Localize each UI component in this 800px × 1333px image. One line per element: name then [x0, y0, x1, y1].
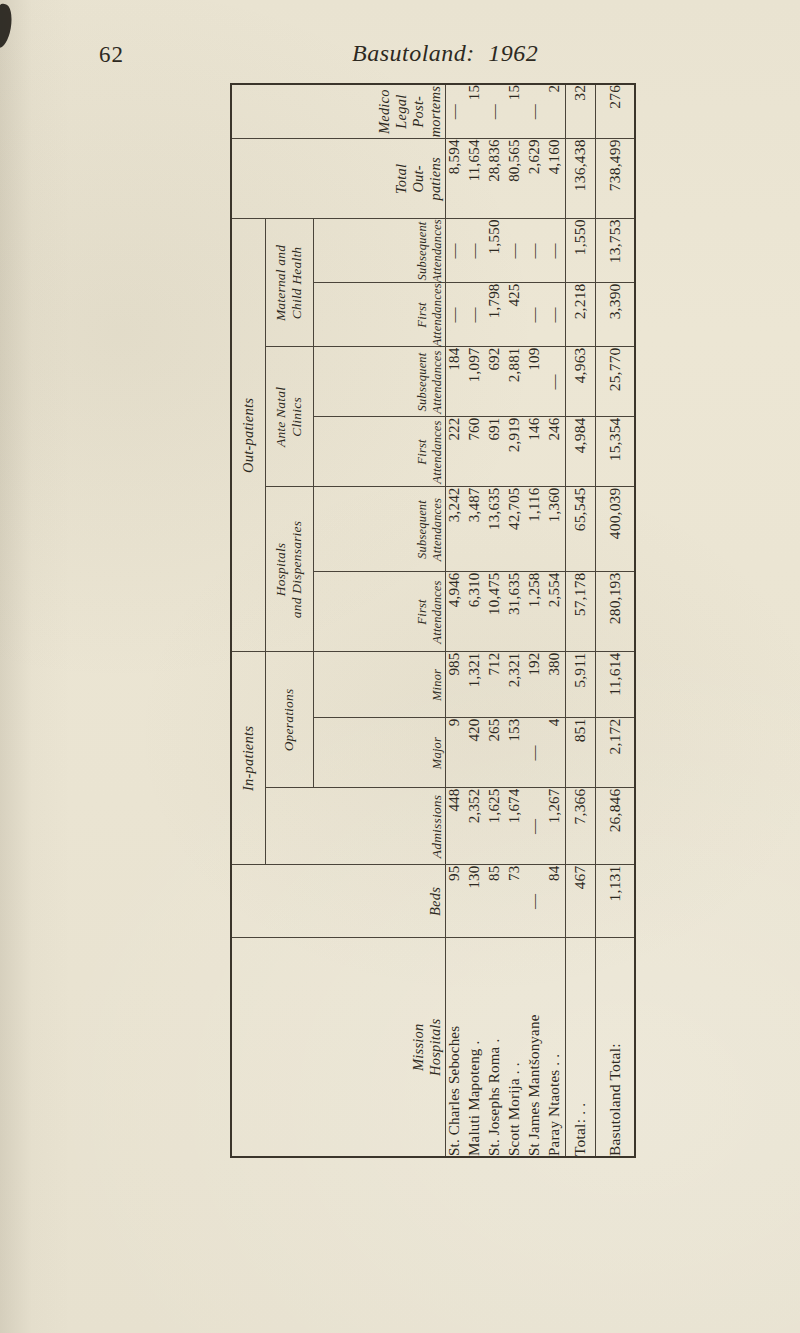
table-cell: 84: [545, 865, 565, 938]
table-cell: 712: [485, 652, 505, 718]
table-cell: 1,360: [545, 487, 565, 572]
table-cell: 222: [445, 417, 465, 487]
table-cell: 32: [565, 84, 595, 139]
table-cell: —: [465, 283, 485, 347]
table-cell: 2,919: [505, 417, 525, 487]
table-cell: 2,629: [525, 139, 545, 219]
table-cell: 851: [565, 718, 595, 788]
hospital-name: Maluti Mapoteng .: [465, 938, 485, 1157]
table-cell: 985: [445, 652, 465, 718]
table-cell: 4: [545, 718, 565, 788]
hospital-name: St James Mantšonyane: [525, 938, 545, 1157]
table-cell: 2,352: [465, 788, 485, 865]
table-body: St. Charles Seboches 95 448 9 985 4,946 …: [445, 84, 635, 1157]
table-cell: 8,594: [445, 139, 465, 219]
table-cell: 1,321: [465, 652, 485, 718]
col-header-hd-subsequent-attendances: Subsequent Attendances: [313, 487, 445, 572]
table-row: St James Mantšonyane — — — 192 1,258 1,1…: [525, 84, 545, 1157]
col-group-out-patients: Out-patients: [231, 219, 265, 652]
col-group-hospitals-and-dispensaries: Hospitals and Dispensaries: [265, 487, 313, 652]
table-cell: 5,911: [565, 652, 595, 718]
table-cell: 136,438: [565, 139, 595, 219]
table-cell: 184: [445, 347, 465, 417]
table-cell: —: [505, 219, 525, 283]
table-cell: 420: [465, 718, 485, 788]
table-cell: 467: [565, 865, 595, 938]
table-cell: 57,178: [565, 572, 595, 652]
table-cell: 9: [445, 718, 465, 788]
table-cell: 448: [445, 788, 465, 865]
table-cell: 2,881: [505, 347, 525, 417]
col-group-maternal-and-child-health: Maternal and Child Health: [265, 219, 313, 347]
table-cell: 380: [545, 652, 565, 718]
table-cell: 7,366: [565, 788, 595, 865]
col-header-hd-first-attendances: First Attendances: [313, 572, 445, 652]
table-cell: 15: [465, 84, 485, 139]
table-header: Mission Hospitals Beds In-patients Out-p…: [231, 84, 445, 1157]
table-cell: 10,475: [485, 572, 505, 652]
table-cell: 13,635: [485, 487, 505, 572]
table-cell: 1,116: [525, 487, 545, 572]
table-cell: 15,354: [595, 417, 635, 487]
table-cell: 692: [485, 347, 505, 417]
table-cell: 26,846: [595, 788, 635, 865]
table-cell: 2,554: [545, 572, 565, 652]
col-header-admissions: Admissions: [265, 788, 445, 865]
table-cell: 265: [485, 718, 505, 788]
table-cell: 280,193: [595, 572, 635, 652]
table-cell: —: [445, 84, 465, 139]
table-cell: 130: [465, 865, 485, 938]
table-cell: 425: [505, 283, 525, 347]
table-cell: 192: [525, 652, 545, 718]
table-cell: 85: [485, 865, 505, 938]
col-header-medico-legal-post-mortems: Medico Legal Post-mortems: [231, 84, 445, 139]
table-cell: 80,565: [505, 139, 525, 219]
table-cell: 760: [465, 417, 485, 487]
table-cell: 11,614: [595, 652, 635, 718]
table-cell: 1,258: [525, 572, 545, 652]
table-cell: 4,963: [565, 347, 595, 417]
table-cell: 28,836: [485, 139, 505, 219]
table-cell: —: [525, 219, 545, 283]
table-cell: —: [525, 718, 545, 788]
table-cell: —: [545, 283, 565, 347]
table-cell: 1,625: [485, 788, 505, 865]
col-header-mch-subsequent-attendances: Subsequent Attendances: [313, 219, 445, 283]
table-cell: —: [525, 865, 545, 938]
col-header-an-first-attendances: First Attendances: [313, 417, 445, 487]
table-cell: —: [525, 283, 545, 347]
table-cell: 1,798: [485, 283, 505, 347]
table-cell: —: [445, 283, 465, 347]
table-cell: 11,654: [465, 139, 485, 219]
table-cell: 738,499: [595, 139, 635, 219]
table-row: Paray Ntaotes . . 84 1,267 4 380 2,554 1…: [545, 84, 565, 1157]
table-cell: 3,242: [445, 487, 465, 572]
table-row: St. Charles Seboches 95 448 9 985 4,946 …: [445, 84, 465, 1157]
table-cell: 42,705: [505, 487, 525, 572]
col-group-ante-natal-clinics: Ante Natal Clinics: [265, 347, 313, 487]
table-cell: 2,321: [505, 652, 525, 718]
col-header-mission-hospitals: Mission Hospitals: [231, 938, 445, 1157]
col-group-in-patients: In-patients: [231, 652, 265, 865]
table-cell: —: [485, 84, 505, 139]
table-cell: 2: [545, 84, 565, 139]
table-cell: 65,545: [565, 487, 595, 572]
page-number: 62: [99, 42, 124, 68]
table-row: St. Josephs Roma . 85 1,625 265 712 10,4…: [485, 84, 505, 1157]
col-header-beds: Beds: [231, 865, 445, 938]
table-row: Scott Morija . . 73 1,674 153 2,321 31,6…: [505, 84, 525, 1157]
table-cell: 25,770: [595, 347, 635, 417]
table-cell: 1,131: [595, 865, 635, 938]
table-cell: 153: [505, 718, 525, 788]
table-cell: 4,160: [545, 139, 565, 219]
table-cell: —: [545, 219, 565, 283]
col-header-an-subsequent-attendances: Subsequent Attendances: [313, 347, 445, 417]
table-cell: 276: [595, 84, 635, 139]
table-cell: 4,946: [445, 572, 465, 652]
table-cell: —: [465, 219, 485, 283]
table-cell: 2,218: [565, 283, 595, 347]
scanned-book-page: 62 Basutoland: 1962 Mission Hospitals Be…: [0, 0, 800, 1333]
table-cell: 95: [445, 865, 465, 938]
table-cell: 1,550: [565, 219, 595, 283]
scan-smudge: [0, 3, 15, 49]
hospital-name: Paray Ntaotes . .: [545, 938, 565, 1157]
table-cell: 73: [505, 865, 525, 938]
table-cell: 146: [525, 417, 545, 487]
table-cell: 246: [545, 417, 565, 487]
table-cell: 400,039: [595, 487, 635, 572]
table-cell: 6,310: [465, 572, 485, 652]
table-cell: 1,550: [485, 219, 505, 283]
table-cell: 4,984: [565, 417, 595, 487]
table-cell: 109: [525, 347, 545, 417]
header-row-groups: Mission Hospitals Beds In-patients Out-p…: [231, 84, 265, 1157]
running-head: Basutoland: 1962: [352, 40, 538, 67]
basutoland-total-label: Basutoland Total:: [595, 938, 635, 1157]
table-cell: 3,390: [595, 283, 635, 347]
col-header-total-out-patients: Total Out- patiens: [231, 139, 445, 219]
table-cell: 31,635: [505, 572, 525, 652]
table-cell: 691: [485, 417, 505, 487]
table-row: Maluti Mapoteng . 130 2,352 420 1,321 6,…: [465, 84, 485, 1157]
hospital-name: Scott Morija . .: [505, 938, 525, 1157]
table-cell: 1,097: [465, 347, 485, 417]
total-row: Total: . . 467 7,366 851 5,911 57,178 65…: [565, 84, 595, 1157]
rotated-table-container: Mission Hospitals Beds In-patients Out-p…: [230, 85, 636, 1158]
col-header-major: Major: [313, 718, 445, 788]
hospital-name: St. Josephs Roma .: [485, 938, 505, 1157]
table-cell: 15: [505, 84, 525, 139]
table-cell: —: [545, 347, 565, 417]
table-cell: —: [445, 219, 465, 283]
table-cell: 1,267: [545, 788, 565, 865]
col-group-operations: Operations: [265, 652, 313, 788]
hospital-name: St. Charles Seboches: [445, 938, 465, 1157]
table-cell: —: [525, 788, 545, 865]
table-cell: 13,753: [595, 219, 635, 283]
col-header-mch-first-attendances: First Attendances: [313, 283, 445, 347]
basutoland-total-row: Basutoland Total: 1,131 26,846 2,172 11,…: [595, 84, 635, 1157]
table-cell: —: [525, 84, 545, 139]
table-cell: 2,172: [595, 718, 635, 788]
table-cell: 1,674: [505, 788, 525, 865]
col-header-minor: Minor: [313, 652, 445, 718]
mission-hospitals-table-rotated: Mission Hospitals Beds In-patients Out-p…: [230, 85, 636, 1158]
total-label: Total: . .: [565, 938, 595, 1157]
mission-hospitals-table: Mission Hospitals Beds In-patients Out-p…: [230, 83, 636, 1158]
table-cell: 3,487: [465, 487, 485, 572]
